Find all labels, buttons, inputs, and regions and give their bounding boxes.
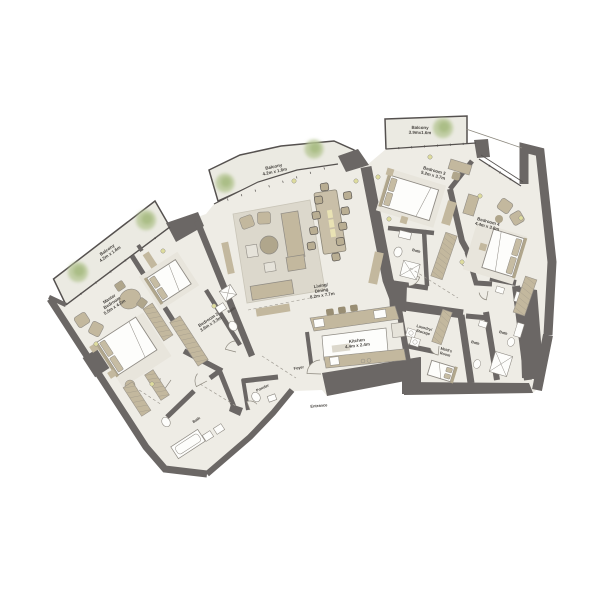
svg-text:Balcony3.9mx1.6m: Balcony3.9mx1.6m xyxy=(409,125,432,135)
